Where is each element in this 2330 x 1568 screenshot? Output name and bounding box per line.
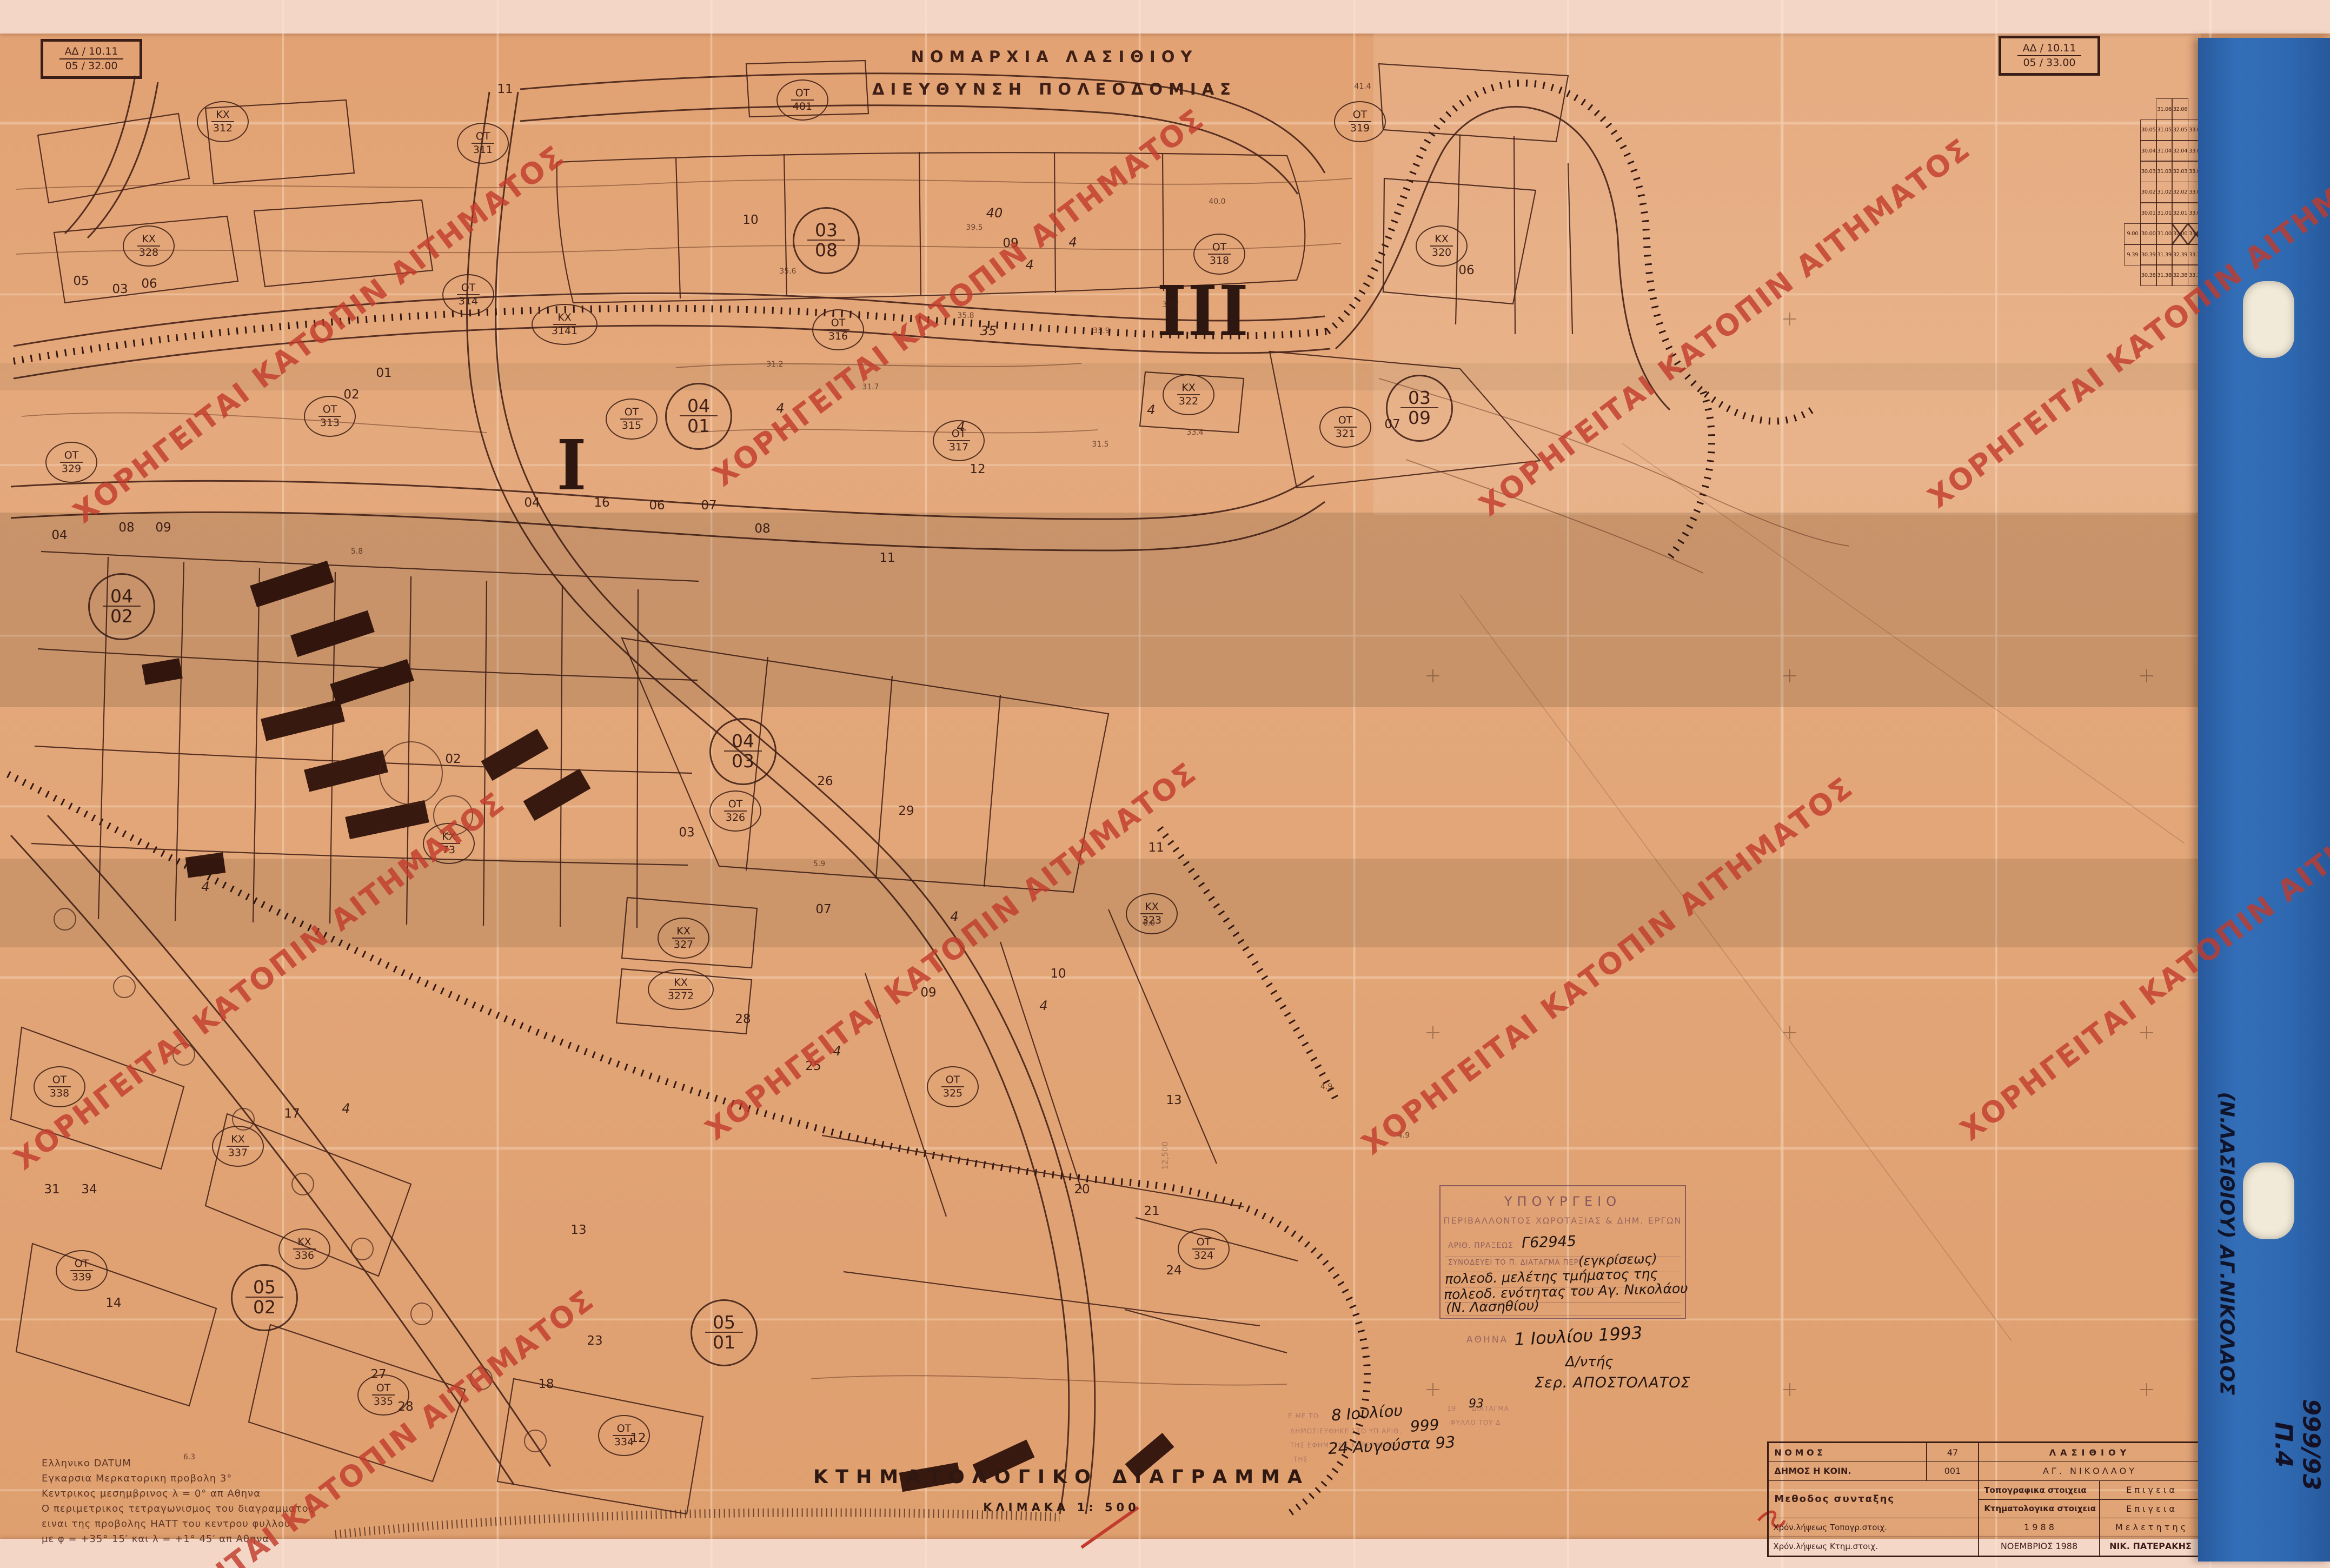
parcel-number: 27: [370, 1367, 386, 1381]
parcel-number: 10: [1050, 967, 1066, 981]
sheet-index-cell: 31.03: [2156, 161, 2173, 182]
sheet-index-cell: 9.39: [2124, 244, 2141, 265]
sheet-index-row: 30.3831.3832.3833.38: [2125, 265, 2204, 285]
sheet-index-cell: 32.38: [2172, 264, 2188, 286]
parcel-number: 12: [630, 1431, 646, 1445]
sheet-index-row: 30.0431.0432.0433.04: [2125, 141, 2204, 161]
block-label: ΚΧ320: [1416, 225, 1468, 267]
parcel-number: 04: [524, 496, 540, 510]
sheet-index-row: 30.0331.0332.0333.03: [2125, 161, 2204, 182]
gazette-stamp-frag2: ΔΗΜΟΣΙΕΥΘΗΚΕ ΣΤΟ ΥΠ ΑΡΙΘ.: [1290, 1427, 1402, 1435]
contour-label: 4: [1039, 998, 1047, 1013]
tb-time-ktim-value: ΝΟΕΜΒΡΙΟΣ 1988: [1978, 1537, 2100, 1556]
punch-hole: [2243, 281, 2294, 358]
stamp-city-label: ΑΘΗΝΑ: [1466, 1334, 1508, 1345]
sheet-index-cell: 30.01: [2140, 202, 2157, 224]
tb-topo-label: Τοπογραφικα στοιχεια: [1978, 1480, 2100, 1500]
roman-numeral-label: ΙΙΙ: [1157, 270, 1250, 351]
tb-topo-value: Ε π ι γ ε ι α: [2099, 1480, 2201, 1500]
tb-nomos-label: Ν Ο Μ Ο Σ: [1768, 1443, 1927, 1462]
sheet-index-cell: 31.00: [2156, 223, 2173, 245]
spot-elevation: 33.4: [1186, 428, 1203, 437]
prefecture-title: ΝΟΜΑΡΧΙΑ ΛΑΣΙΘΙΟΥ: [911, 48, 1198, 66]
map-title: ΚΤΗΜΑΤΟΛΟΓΙΚΟ ΔΙΑΓΡΑΜΜΑ: [813, 1466, 1310, 1488]
spot-elevation: 6.0: [1143, 919, 1155, 928]
sheet-index-cell: 30.03: [2140, 161, 2157, 182]
parcel-number: 07: [701, 499, 716, 513]
parcel-number: 20: [1074, 1182, 1090, 1197]
contour-label: 4: [342, 1101, 350, 1116]
parcel-number: 11: [879, 551, 895, 565]
stamp-hand-line3: (Ν. Λασηθίου): [1446, 1298, 1540, 1316]
stamp-ministry-line2: ΠΕΡΙΒΑΛΛΟΝΤΟΣ ΧΩΡΟΤΑΞΙΑΣ & ΔΗΜ. ΕΡΓΩΝ: [1441, 1215, 1685, 1226]
parcel-number: 04: [51, 528, 67, 542]
stamp-decree-label: ΣΥΝΟΔΕΥΕΙ ΤΟ Π. ΔΙΑΤΑΓΜΑ ΠΕΡΙ: [1448, 1259, 1581, 1267]
spot-elevation: 35.6: [779, 267, 796, 276]
parcel-number: 28: [735, 1012, 751, 1026]
gazette-stamp-frag4: ΤΗΣ: [1293, 1456, 1308, 1463]
parcel-number: 06: [649, 499, 665, 513]
sheet-index-cell: 30.05: [2140, 119, 2157, 141]
spot-elevation: 31.5: [1092, 440, 1108, 449]
block-label: ΟΤ339: [56, 1250, 108, 1291]
planning-directorate-subtitle: ΔΙΕΥΘΥΝΣΗ ΠΟΛΕΟΔΟΜΙΑΣ: [872, 80, 1237, 98]
spot-elevation: 41.4: [1354, 82, 1371, 91]
title-block: Ν Ο Μ Ο Σ 47 ΛΑΣΙΘΙΟΥ ΔΗΜΟΣ Η ΚΟΙΝ. 001 …: [1767, 1441, 2203, 1557]
stamp-praxis-number: Γ62945: [1521, 1233, 1576, 1252]
block-label: ΚΧ312: [197, 101, 249, 142]
sheet-index-row: 30.0531.0532.0533.05: [2125, 119, 2204, 140]
tb-meletitis-label: Μ ε λ ε τ η τ η ς: [2099, 1518, 2201, 1537]
tb-ktim-value: Ε π ι γ ε ι α: [2099, 1499, 2201, 1518]
contour-label: 4: [950, 909, 958, 924]
sheet-index-cell: 9.00: [2124, 223, 2141, 245]
spot-elevation: 5.8: [351, 547, 363, 556]
tb-dimos-value: ΑΓ. ΝΙΚΟΛΑΟΥ: [1978, 1461, 2201, 1481]
parcel-number: 24: [1166, 1264, 1181, 1278]
parcel-number: 08: [754, 522, 770, 536]
block-label: ΚΧ322: [1163, 374, 1214, 415]
binder-case-number: 999/93 Π.4: [2269, 1399, 2324, 1490]
signer-role: Δ/ντής: [1565, 1354, 1613, 1370]
parcel-number: 02: [343, 388, 359, 402]
sheet-index-row: 30.0131.0132.0133.01: [2125, 203, 2204, 223]
sheet-index-cell: 30.39: [2140, 244, 2157, 265]
block-label: ΟΤ319: [1334, 101, 1386, 142]
block-label: ΚΧ3272: [648, 969, 714, 1010]
parcel-number: 06: [1458, 263, 1474, 277]
section-label: 0402: [88, 573, 155, 640]
scanned-cadastral-map-sheet: ΚΧ312ΟΤ311ΟΤ401ΟΤ319ΟΤ318ΚΧ320ΚΧ328ΟΤ314…: [0, 0, 2330, 1568]
contour-label: 40: [986, 205, 1003, 221]
parcel-number: 07: [1384, 417, 1400, 431]
sheet-index-grid: 31.0632.0630.0531.0532.0533.0530.0431.04…: [2125, 99, 2204, 286]
sheet-index-cell: 31.04: [2156, 140, 2173, 162]
spot-elevation: 5.9: [813, 860, 825, 868]
parcel-number: 29: [898, 804, 914, 818]
contour-label: 4: [1068, 235, 1077, 250]
sheet-index-cell: 32.01: [2172, 202, 2188, 224]
sheet-index-cell: 31.06: [2156, 98, 2173, 120]
block-label: ΚΧ336: [278, 1228, 330, 1270]
sheet-number: 05 / 32.00: [65, 59, 117, 73]
block-label: ΟΤ329: [45, 442, 97, 483]
datum-line: Εγκαρσια Μερκατορικη προβολη 3°: [42, 1473, 315, 1484]
ministry-stamp: ΥΠΟΥΡΓΕΙΟ ΠΕΡΙΒΑΛΛΟΝΤΟΣ ΧΩΡΟΤΑΞΙΑΣ & ΔΗΜ…: [1439, 1185, 1686, 1319]
datum-line: Ελληνικο DATUM: [42, 1458, 315, 1469]
parcel-number: 13: [570, 1223, 586, 1237]
sheet-ref-box-right: ΑΔ / 10.11 05 / 33.00: [1999, 36, 2100, 76]
spot-elevation: 40.0: [1209, 197, 1225, 206]
parcel-number: 02: [445, 752, 461, 766]
block-label: ΚΧ328: [123, 225, 175, 267]
block-label: ΟΤ318: [1193, 234, 1245, 275]
sheet-index-cell: 31.39: [2156, 244, 2173, 265]
sheet-index-row: 30.0231.0232.0233.02: [2125, 182, 2204, 203]
sheet-index-cell: 30.04: [2140, 140, 2157, 162]
tb-dimos-label: ΔΗΜΟΣ Η ΚΟΙΝ.: [1768, 1461, 1927, 1481]
sheet-index-cell: 31.02: [2156, 182, 2173, 203]
sheet-number: 05 / 33.00: [2023, 56, 2075, 70]
datum-line: Κεντρικος μεσημβρινος λ = 0° απ Αθηνα: [42, 1488, 315, 1499]
sheet-index-cell: 32.03: [2172, 161, 2188, 182]
tb-nomos-value: ΛΑΣΙΘΙΟΥ: [1978, 1443, 2201, 1462]
sheet-index-row: 9.3930.3931.3932.3933.39: [2125, 244, 2204, 265]
parcel-number: 09: [155, 521, 171, 535]
parcel-number: 11: [497, 82, 513, 96]
block-label: ΟΤ326: [709, 790, 761, 832]
parcel-number: 10: [742, 213, 758, 227]
sheet-index-cell: 31.05: [2156, 119, 2173, 141]
parcel-number: 07: [815, 902, 831, 916]
block-label: ΟΤ316: [812, 309, 864, 350]
sheet-index-cell: 32.04: [2172, 140, 2188, 162]
sheet-index-cell: 32.02: [2172, 182, 2188, 203]
gazette-stamp-frag6: ΦΥΛΛΟ ΤΟΥ Δ: [1450, 1419, 1501, 1426]
map-scale: ΚΛΙΜΑΚΑ 1: 500: [983, 1501, 1139, 1514]
section-label: 0401: [665, 383, 732, 450]
spot-elevation: 37.7: [1162, 301, 1179, 309]
parcel-number: 01: [376, 366, 391, 380]
parcel-number: 21: [1144, 1204, 1159, 1218]
section-label: 0502: [231, 1264, 298, 1331]
sheet-index-cell: 30.38: [2140, 264, 2157, 286]
block-label: ΚΧ3141: [532, 304, 598, 345]
parcel-number: 08: [118, 521, 134, 535]
note-year-93: 93: [1469, 1397, 1484, 1411]
contour-label: 4: [201, 879, 209, 894]
section-label: 0308: [793, 207, 860, 274]
parcel-number: 06: [141, 277, 157, 291]
block-label: ΟΤ325: [927, 1066, 979, 1107]
tb-time-ktim-label: Χρόν.λήψεως Κτημ.στοιχ.: [1768, 1537, 1979, 1556]
tb-meletitis-name: ΝΙΚ. ΠΑΤΕΡΑΚΗΣ: [2099, 1537, 2201, 1556]
parcel-number: 03: [679, 826, 694, 840]
parcel-number: 13: [1166, 1093, 1181, 1107]
block-label: ΚΧ323: [1126, 893, 1178, 934]
block-label: ΟΤ324: [1178, 1228, 1230, 1270]
sheet-ref-code: ΑΔ / 10.11: [59, 45, 124, 59]
sheet-index-cell: 31.01: [2156, 202, 2173, 224]
sheet-index-row: 9.0030.0031.0032.0033.00: [2125, 223, 2204, 244]
block-label: ΚΧ337: [212, 1126, 264, 1167]
block-label: ΟΤ313: [304, 396, 356, 437]
spot-elevation: 35.9: [1093, 327, 1110, 335]
section-label: 0309: [1386, 375, 1453, 442]
tb-method-label: Μεθοδος συνταξης: [1768, 1480, 1979, 1519]
roman-numeral-label: Ι: [556, 424, 587, 506]
sheet-index-cell: 32.00: [2172, 223, 2188, 245]
tb-time-topo-label: Χρόν.λήψεως Τοπογρ.στοιχ.: [1768, 1518, 1979, 1537]
block-label: ΚΧ327: [658, 918, 709, 959]
block-label: ΟΤ314: [442, 274, 494, 315]
spot-elevation: 39.5: [966, 223, 983, 232]
sheet-ref-code: ΑΔ / 10.11: [2017, 42, 2082, 56]
case-number: 999/93: [2298, 1399, 2325, 1490]
parcel-number: 05: [73, 274, 89, 288]
sheet-code: Π.4: [2270, 1422, 2298, 1467]
sheet-index-cell: 30.00: [2140, 223, 2157, 245]
parcel-number: 17: [284, 1107, 300, 1121]
tb-time-topo-value: 1 9 8 8: [1978, 1518, 2100, 1537]
binder-side-label: (Ν.ΛΑΣΙΘΙΟΥ) ΑΓ.ΝΙΚΟΛΑΟΣ: [2216, 1092, 2238, 1395]
tb-ktim-label: Κτηματολογικα στοιχεια: [1978, 1499, 2100, 1518]
parcel-number: 34: [81, 1182, 97, 1197]
block-label: ΟΤ321: [1319, 407, 1371, 448]
parcel-number: 23: [587, 1334, 602, 1348]
sheet-ref-box-left: ΑΔ / 10.11 05 / 32.00: [41, 39, 142, 79]
signer-name: Σερ. ΑΠΟΣΤΟΛΑΤΟΣ: [1535, 1374, 1691, 1391]
spot-elevation: 31.2: [766, 360, 783, 369]
parcel-number: 16: [594, 496, 609, 510]
sheet-index-cell: 30.02: [2140, 182, 2157, 203]
tb-dimos-code: 001: [1926, 1461, 1979, 1481]
parcel-number: 18: [538, 1377, 554, 1391]
note-number-999: 999: [1410, 1416, 1440, 1436]
sheet-index-cell: 31.38: [2156, 264, 2173, 286]
parcel-number: 26: [817, 774, 833, 788]
stamp-ministry-line1: ΥΠΟΥΡΓΕΙΟ: [1441, 1194, 1685, 1209]
parcel-number: 14: [105, 1296, 121, 1310]
parcel-number: 03: [112, 282, 128, 296]
contour-label: 4: [957, 419, 965, 434]
block-label: ΟΤ311: [457, 123, 509, 164]
sheet-index-row: 31.0632.06: [2125, 99, 2204, 119]
sheet-index-cell: 32.06: [2172, 98, 2188, 120]
spot-elevation: 4.9: [1320, 1082, 1332, 1091]
contour-label: 4: [1147, 402, 1155, 417]
parcel-number: 11: [1148, 841, 1164, 855]
parcel-number: 12: [970, 462, 985, 476]
punch-hole: [2243, 1162, 2294, 1239]
section-label: 0403: [709, 718, 776, 785]
contour-label: 35: [980, 323, 997, 338]
tb-nomos-code: 47: [1926, 1443, 1979, 1462]
section-label: 0501: [691, 1299, 758, 1366]
block-label: ΟΤ401: [776, 79, 828, 121]
sheet-index-cell: 32.05: [2172, 119, 2188, 141]
block-label: ΟΤ315: [606, 398, 658, 440]
gazette-stamp-frag1: Ε ΜΕ ΤΟ: [1288, 1412, 1319, 1420]
sheet-index-cell: 32.39: [2172, 244, 2188, 265]
stamp-praxis-label: ΑΡΙΘ. ΠΡΑΞΕΩΣ: [1448, 1241, 1513, 1250]
parcel-number: 31: [44, 1182, 59, 1197]
